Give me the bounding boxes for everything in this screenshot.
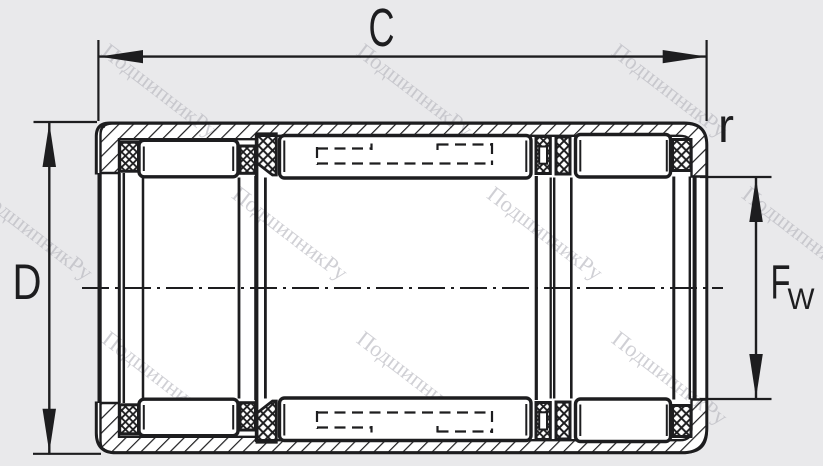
svg-text:W: W [788, 283, 815, 316]
svg-text:D: D [13, 253, 42, 310]
svg-text:r: r [718, 100, 734, 153]
svg-text:C: C [369, 0, 395, 58]
